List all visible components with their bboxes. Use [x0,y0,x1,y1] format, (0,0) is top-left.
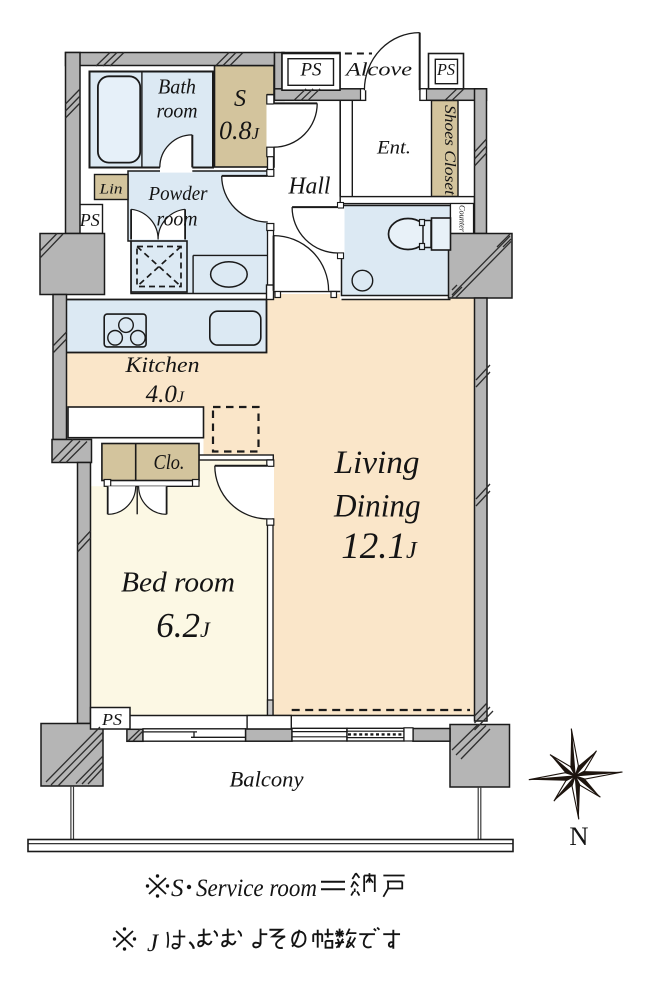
svg-text:J: J [147,930,160,957]
svg-text:Bath: Bath [158,75,196,99]
svg-text:S: S [234,86,246,112]
svg-text:Shoes Closet: Shoes Closet [441,105,458,196]
svg-text:room: room [157,209,198,231]
svg-text:Powder: Powder [148,183,209,205]
svg-text:PS: PS [101,710,123,729]
svg-text:PS: PS [79,210,100,230]
svg-text:S: S [171,875,184,902]
svg-text:Balcony: Balcony [230,767,304,792]
svg-text:Clo.: Clo. [154,450,185,474]
svg-text:Kitchen: Kitchen [124,352,199,377]
svg-text:Counter: Counter [458,205,468,233]
svg-text:room: room [157,99,198,123]
svg-text:Bed room: Bed room [121,568,235,599]
svg-text:N: N [569,821,588,851]
svg-text:Alcove: Alcove [343,60,412,81]
svg-text:Hall: Hall [288,174,331,200]
svg-text:Dining: Dining [333,489,420,525]
svg-text:Living: Living [333,445,419,481]
svg-text:Ent.: Ent. [376,138,411,159]
svg-text:Service room: Service room [196,875,317,902]
svg-text:PS: PS [436,60,455,79]
svg-text:PS: PS [300,60,322,81]
svg-text:Lin: Lin [98,182,122,198]
